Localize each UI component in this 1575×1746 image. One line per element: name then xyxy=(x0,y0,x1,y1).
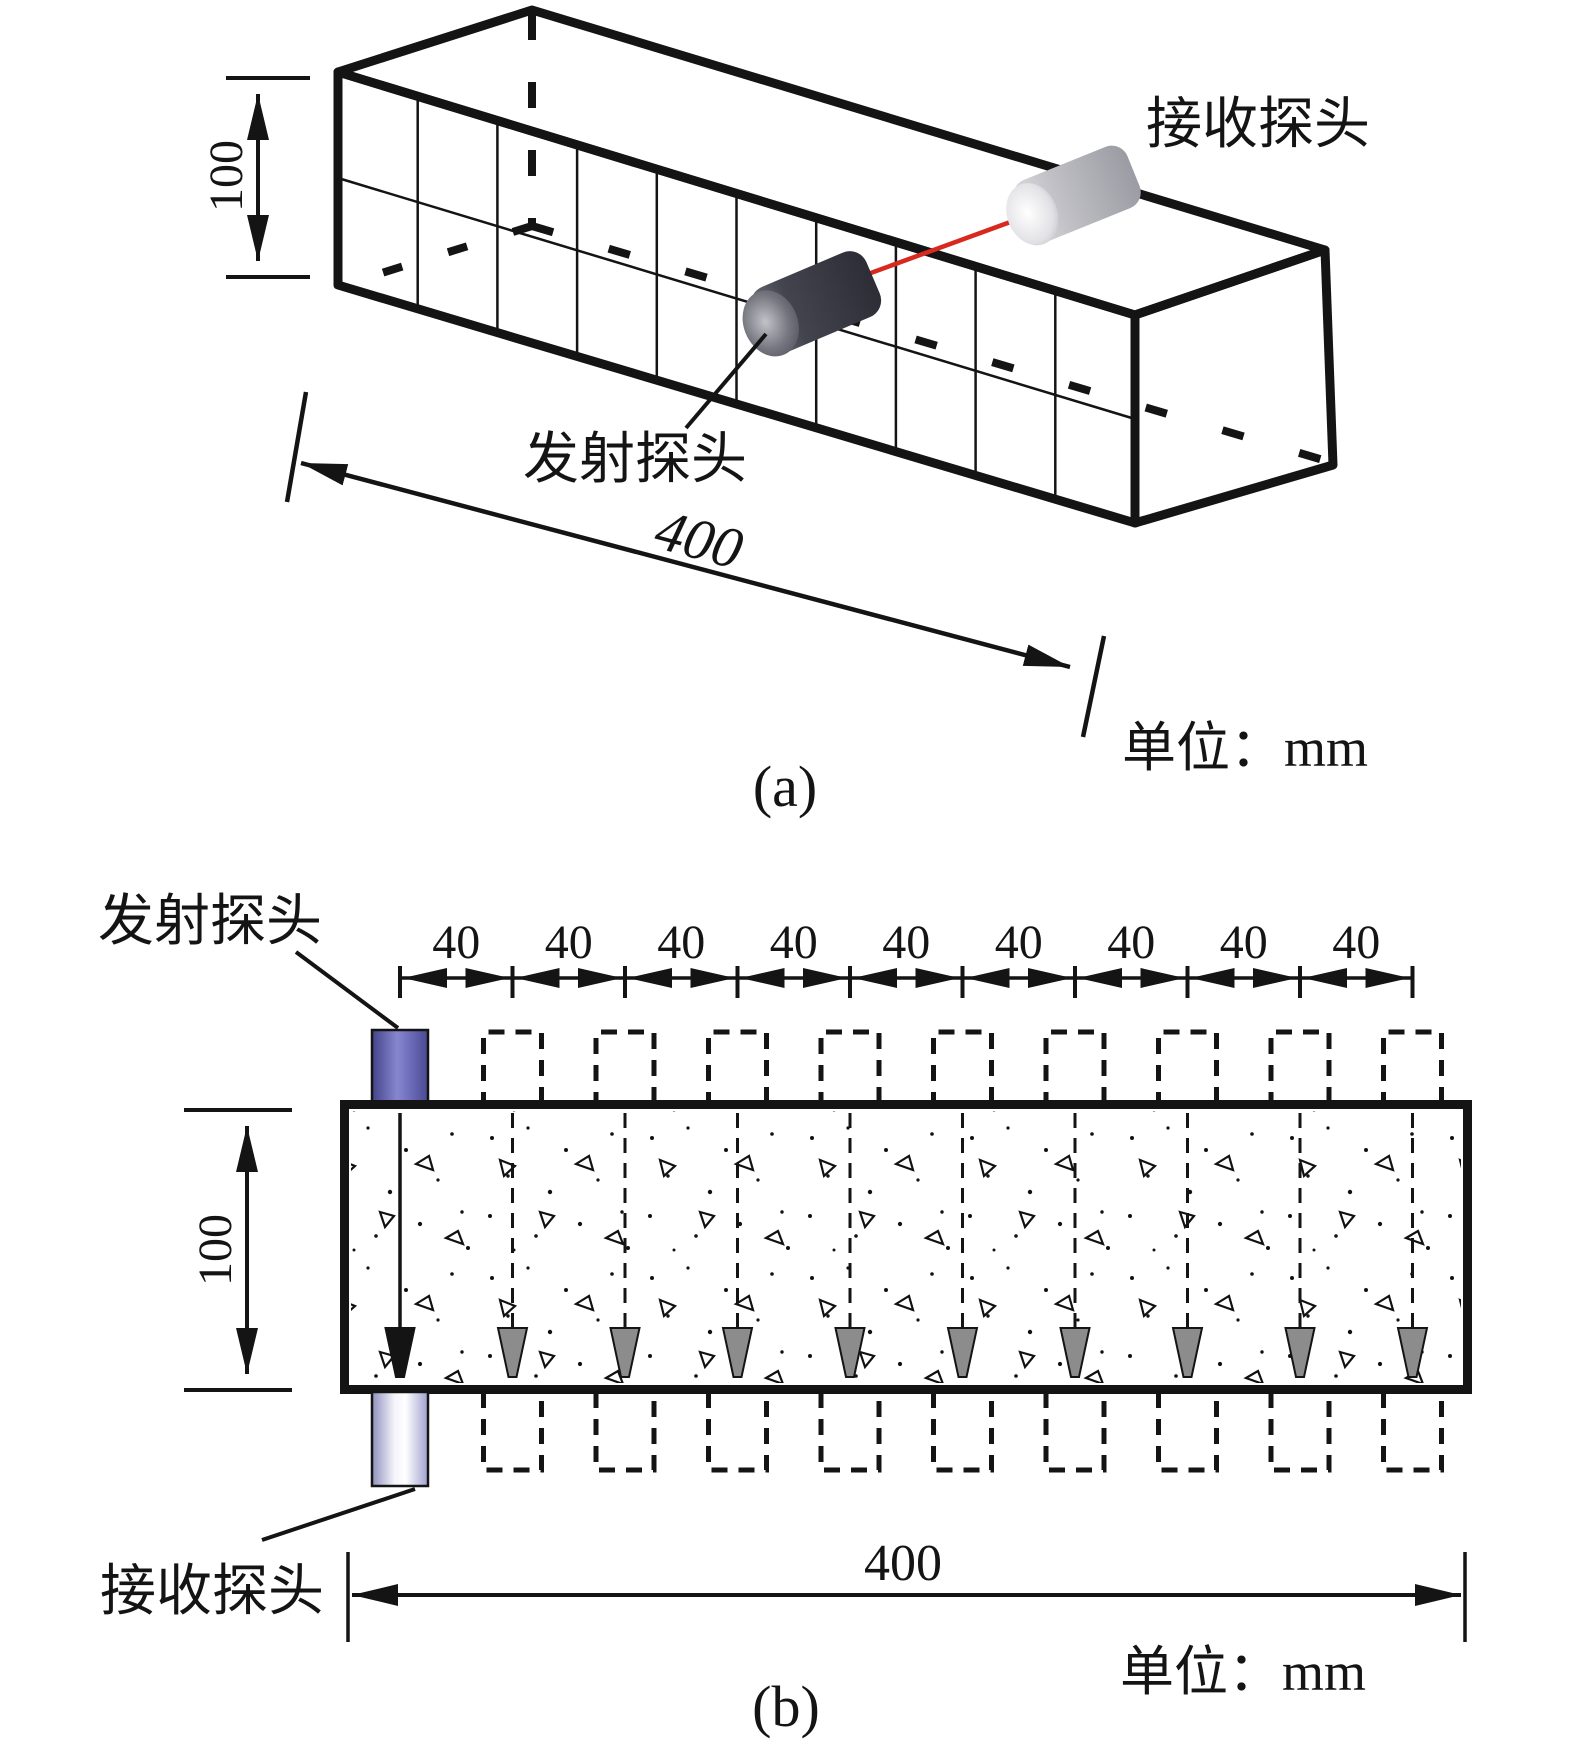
probe-position-outline-top xyxy=(1159,1032,1217,1108)
part-b-side-view: 发射探头 404040404040404040 100 接收探头 xyxy=(98,891,1468,1739)
probe-position-outline-top xyxy=(596,1032,654,1108)
probe-position-outline-top xyxy=(1271,1032,1329,1108)
probe-position-outline-bottom xyxy=(934,1392,992,1470)
part-b-height-dim-label: 100 xyxy=(189,1214,242,1286)
figure-specimen-diagram: 100 xyxy=(0,0,1575,1746)
spacing-dim-label: 40 xyxy=(1220,916,1268,969)
probe-position-outline-bottom xyxy=(1159,1392,1217,1470)
part-b-unit-label: 单位：mm xyxy=(1120,1642,1366,1702)
spacing-arrow-right xyxy=(803,968,847,988)
part-a-isometric-view: 100 xyxy=(200,10,1370,819)
probe-position-outline-top xyxy=(484,1032,542,1108)
probe-position-outline-top xyxy=(709,1032,767,1108)
spacing-arrow-left xyxy=(741,968,785,988)
spacing-arrow-right xyxy=(466,968,510,988)
spacing-dim-label: 40 xyxy=(432,916,480,969)
spacing-arrow-left xyxy=(1303,968,1347,988)
spacing-dim-label: 40 xyxy=(1332,916,1380,969)
spacing-dim-label: 40 xyxy=(1107,916,1155,969)
part-a-receiver-label: 接收探头 xyxy=(1146,94,1370,156)
transmitter-leader-line-b xyxy=(296,952,398,1028)
part-b-caption: (b) xyxy=(752,1674,820,1739)
spacing-arrow-right xyxy=(916,968,960,988)
spacing-arrow-left xyxy=(1078,968,1122,988)
probe-position-outline-top xyxy=(1046,1032,1104,1108)
spacing-arrow-left xyxy=(966,968,1010,988)
part-b-length-dim-label: 400 xyxy=(864,1535,942,1592)
probe-position-outline-bottom xyxy=(821,1392,879,1470)
spacing-arrow-right xyxy=(1253,968,1297,988)
receiver-probe-b xyxy=(372,1392,428,1486)
spacing-dim-label: 40 xyxy=(545,916,593,969)
bottom-probe-positions xyxy=(484,1392,1442,1470)
part-a-height-dim-label: 100 xyxy=(200,140,253,212)
probe-position-outline-bottom xyxy=(1046,1392,1104,1470)
spacing-arrow-left xyxy=(628,968,672,988)
part-a-unit-label: 单位：mm xyxy=(1122,718,1368,778)
probe-position-outline-bottom xyxy=(1384,1392,1442,1470)
probe-position-outline-top xyxy=(821,1032,879,1108)
part-a-transmitter-label: 发射探头 xyxy=(523,429,747,491)
spacing-arrow-left xyxy=(403,968,447,988)
spacing-dimension-row: 404040404040404040 xyxy=(400,916,1413,998)
part-a-length-dim-label: 400 xyxy=(649,497,750,582)
spacing-arrow-left xyxy=(853,968,897,988)
spacing-arrow-left xyxy=(1191,968,1235,988)
probe-position-outline-top xyxy=(1384,1032,1442,1108)
probe-position-outline-bottom xyxy=(596,1392,654,1470)
probe-position-outline-bottom xyxy=(484,1392,542,1470)
spacing-arrow-right xyxy=(1141,968,1185,988)
transmitter-probe-b xyxy=(372,1030,428,1108)
spacing-dim-label: 40 xyxy=(770,916,818,969)
receiver-leader-line-b xyxy=(262,1489,415,1540)
spacing-arrow-left xyxy=(516,968,560,988)
part-b-receiver-label: 接收探头 xyxy=(100,1561,324,1623)
probe-position-outline-bottom xyxy=(709,1392,767,1470)
spacing-arrow-right xyxy=(578,968,622,988)
probe-position-outline-top xyxy=(934,1032,992,1108)
spacing-dim-label: 40 xyxy=(995,916,1043,969)
top-probe-positions xyxy=(484,1032,1442,1108)
spacing-dim-label: 40 xyxy=(882,916,930,969)
part-b-transmitter-label: 发射探头 xyxy=(98,891,322,953)
spacing-dim-label: 40 xyxy=(657,916,705,969)
probe-position-outline-bottom xyxy=(1271,1392,1329,1470)
spacing-arrow-right xyxy=(1028,968,1072,988)
part-a-caption: (a) xyxy=(753,754,817,819)
spacing-arrow-right xyxy=(1366,968,1410,988)
spacing-arrow-right xyxy=(691,968,735,988)
figure-svg: 100 xyxy=(0,0,1575,1746)
